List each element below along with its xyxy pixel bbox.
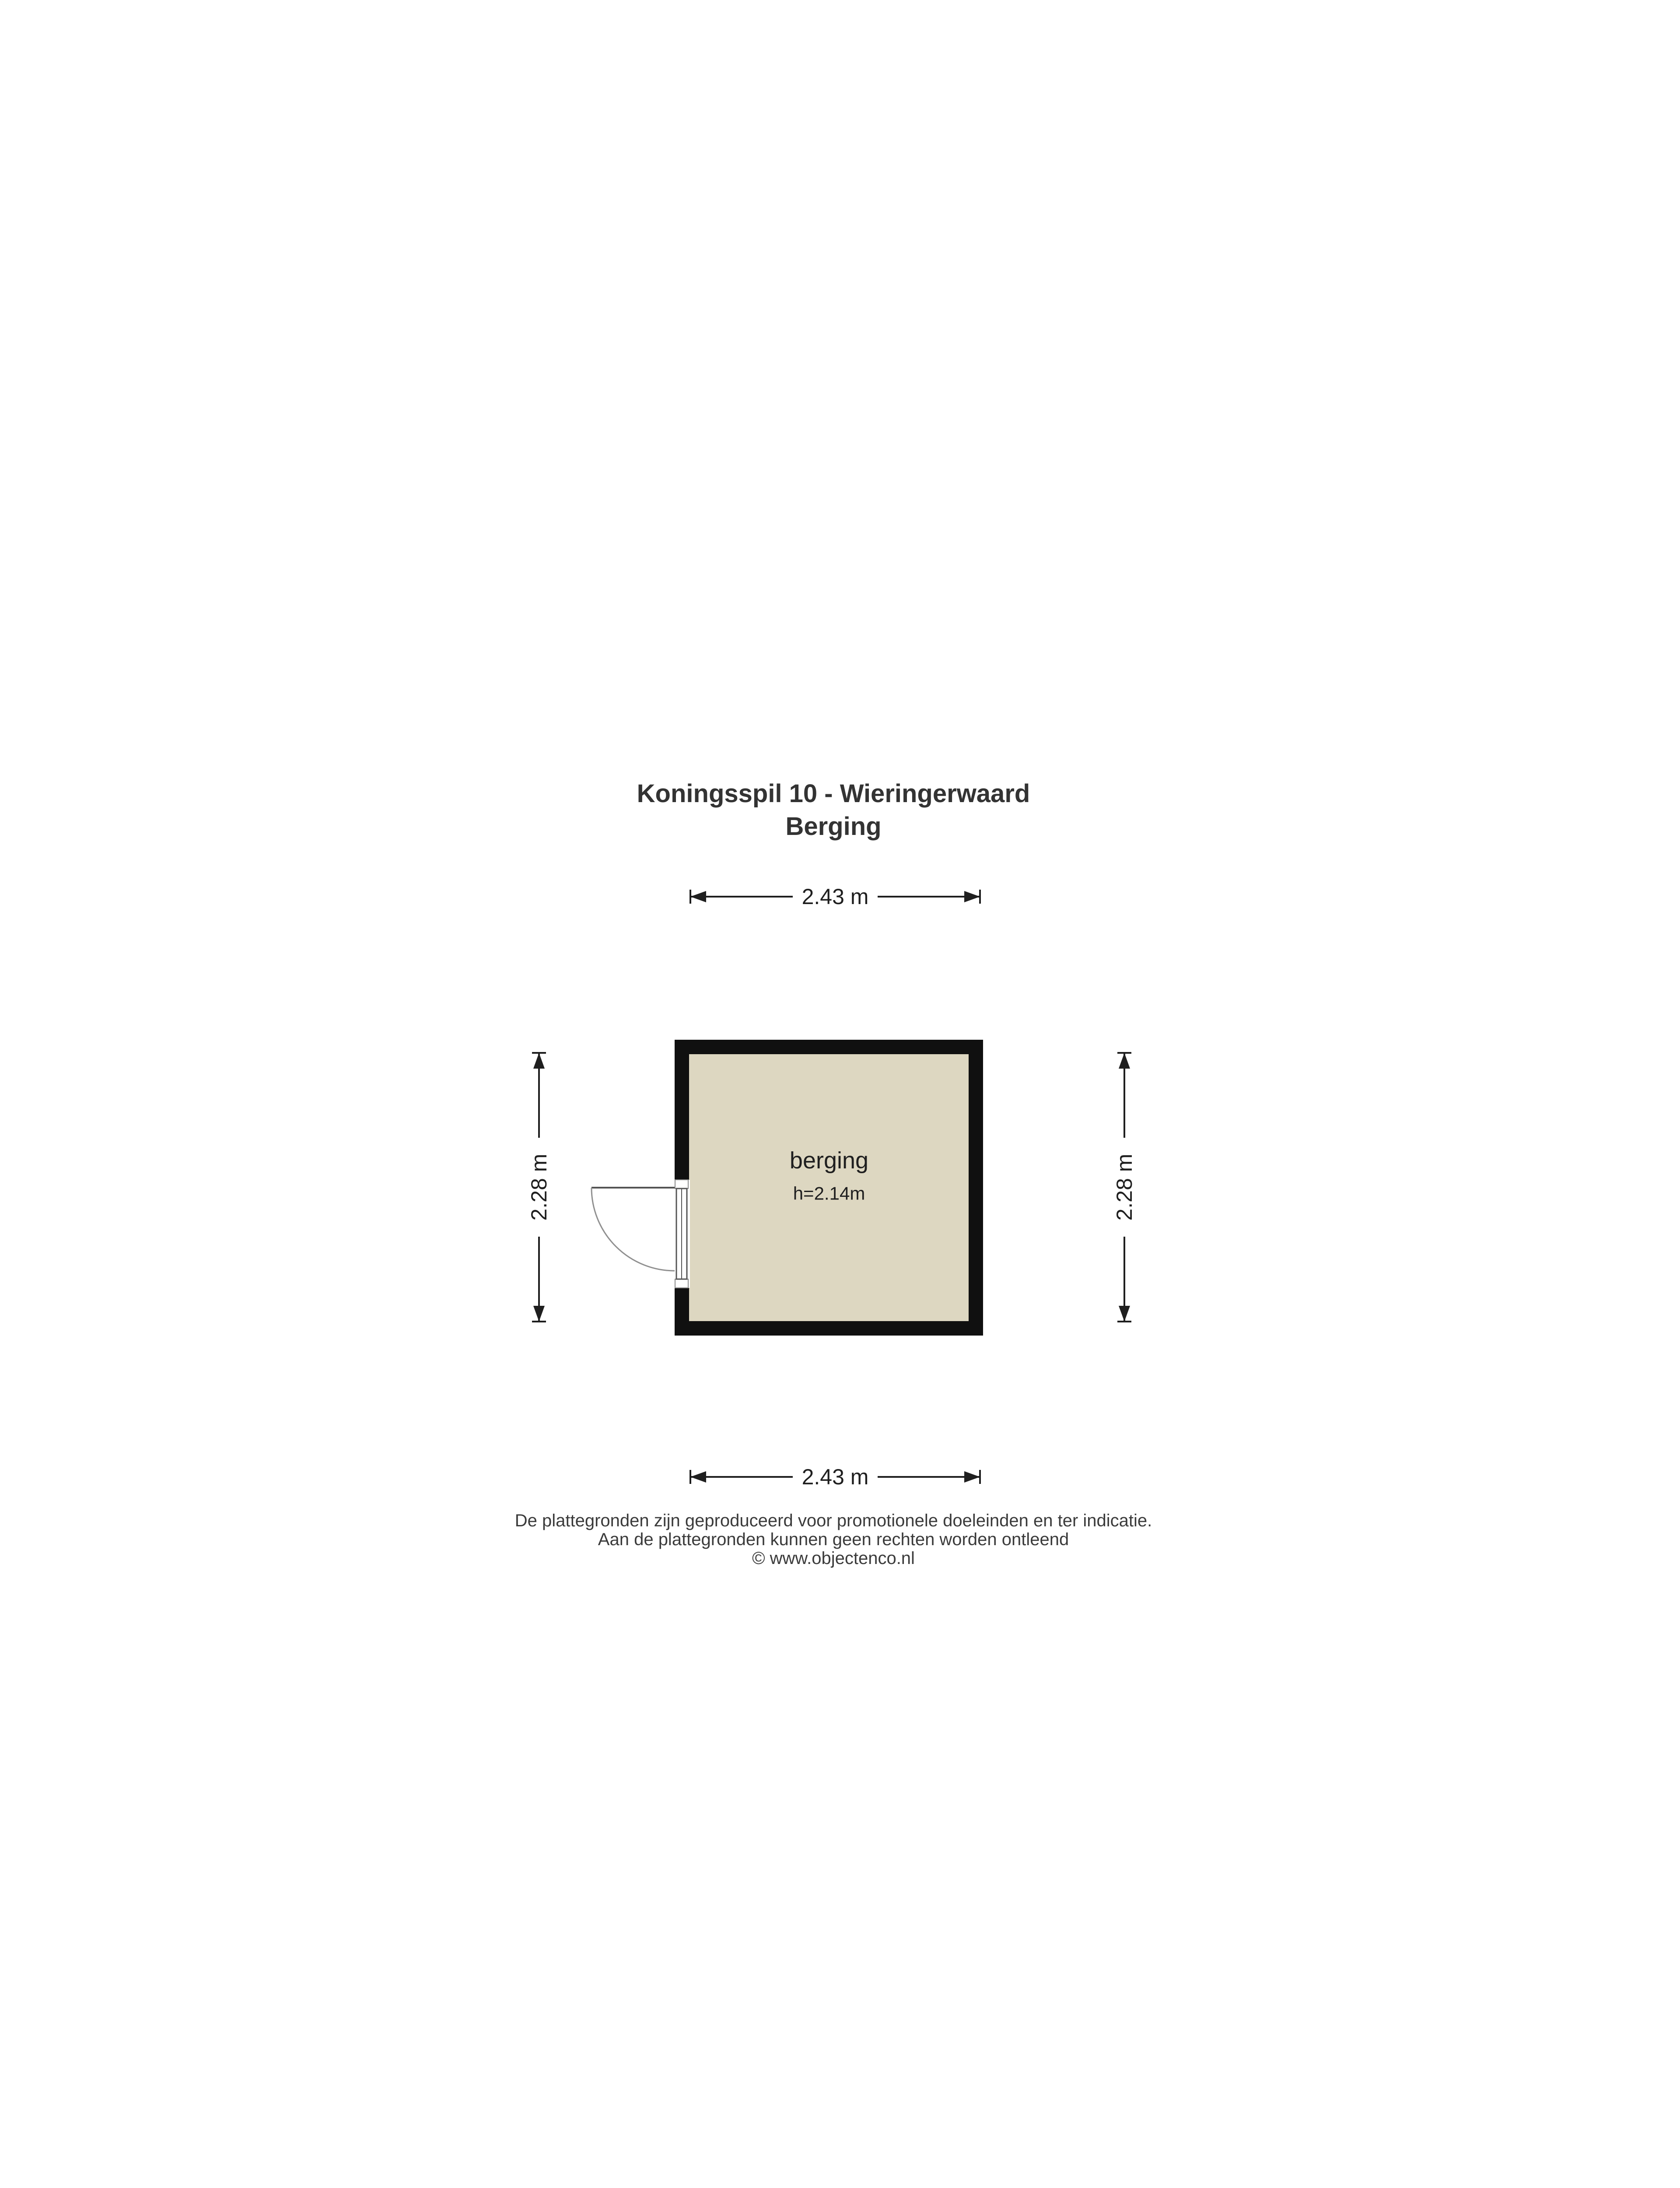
arrowhead-left-icon [690,891,706,902]
page-root: Koningsspil 10 - Wieringerwaard Berging … [0,0,1680,2188]
footer-disclaimer-line1: De plattegronden zijn geproduceerd voor … [0,1511,1673,1530]
dimension-label-left: 2.28 m [527,1154,551,1221]
arrowhead-down-icon [1119,1306,1130,1322]
dimension-label-bottom: 2.43 m [802,1465,869,1489]
door-threshold-top [675,1180,688,1189]
footer-disclaimer-line2: Aan de plattegronden kunnen geen rechten… [0,1530,1673,1549]
arrowhead-right-icon [964,891,980,902]
footer-copyright: © www.objectenco.nl [0,1549,1673,1568]
dimension-label-top: 2.43 m [802,884,869,909]
door-threshold-bottom [675,1279,688,1288]
arrowhead-down-icon [533,1306,545,1322]
door-swing-arc [591,1188,675,1271]
room-label: berging [790,1147,868,1174]
dimension-label-right: 2.28 m [1112,1154,1137,1221]
footer-disclaimer: De plattegronden zijn geproduceerd voor … [0,1511,1673,1568]
arrowhead-left-icon [690,1471,706,1483]
arrowhead-up-icon [1119,1053,1130,1069]
arrowhead-right-icon [964,1471,980,1483]
door-opening [591,1180,690,1288]
room-height-label: h=2.14m [793,1183,865,1204]
arrowhead-up-icon [533,1053,545,1069]
floorplan-canvas: 2.43 m berging h=2.14m 2.28 m [0,0,1680,2188]
